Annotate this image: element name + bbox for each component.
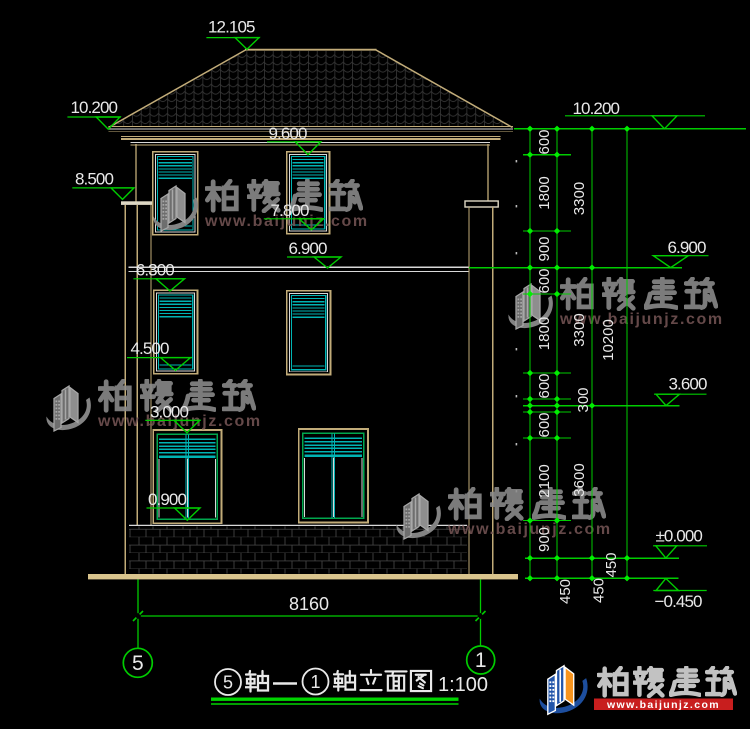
svg-text:900: 900 [536,527,553,552]
svg-text:www.baijunjz.com: www.baijunjz.com [606,699,720,711]
svg-text:5: 5 [132,652,144,675]
svg-text:0.900: 0.900 [148,490,186,509]
svg-text:1: 1 [310,672,320,692]
svg-text:5: 5 [223,673,233,693]
svg-text:450: 450 [591,578,608,603]
svg-text:10.200: 10.200 [573,99,620,118]
svg-text:6.900: 6.900 [668,238,706,257]
svg-text:450: 450 [603,552,620,577]
svg-text:2100: 2100 [536,464,553,497]
svg-text:3600: 3600 [571,463,588,496]
svg-text:600: 600 [536,129,553,154]
svg-text:±0.000: ±0.000 [656,526,703,545]
svg-text:1:100: 1:100 [438,674,488,696]
svg-text:1800: 1800 [536,176,553,209]
svg-text:600: 600 [536,268,553,293]
svg-text:1: 1 [475,649,487,672]
svg-text:6.300: 6.300 [136,261,174,280]
svg-text:4.500: 4.500 [131,339,169,358]
svg-text:3.000: 3.000 [150,402,188,421]
svg-text:10.200: 10.200 [71,98,118,117]
svg-text:12.105: 12.105 [208,18,255,37]
svg-text:3300: 3300 [571,182,588,215]
svg-text:6.900: 6.900 [289,239,327,258]
svg-text:600: 600 [536,373,553,398]
svg-text:8.500: 8.500 [75,170,113,189]
svg-text:600: 600 [536,412,553,437]
svg-text:450: 450 [557,579,574,604]
svg-text:10200: 10200 [600,319,617,361]
svg-text:3300: 3300 [571,313,588,346]
svg-text:3.600: 3.600 [669,375,707,394]
svg-text:7.800: 7.800 [271,201,309,220]
svg-text:8160: 8160 [289,594,329,614]
svg-text:9.600: 9.600 [269,124,307,143]
svg-text:300: 300 [575,387,592,412]
svg-text:−0.450: −0.450 [655,592,703,611]
svg-text:900: 900 [536,236,553,261]
svg-text:1800: 1800 [536,317,553,350]
